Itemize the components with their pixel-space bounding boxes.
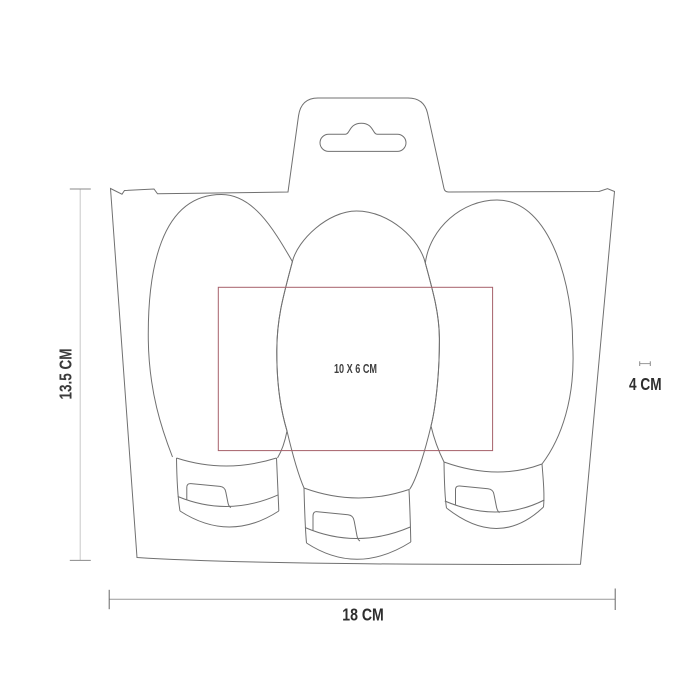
svg-text:18 CM: 18 CM (342, 605, 384, 625)
svg-text:4 CM: 4 CM (629, 374, 662, 394)
svg-text:13.5 CM: 13.5 CM (56, 349, 76, 400)
svg-text:10 X 6 CM: 10 X 6 CM (334, 362, 377, 376)
